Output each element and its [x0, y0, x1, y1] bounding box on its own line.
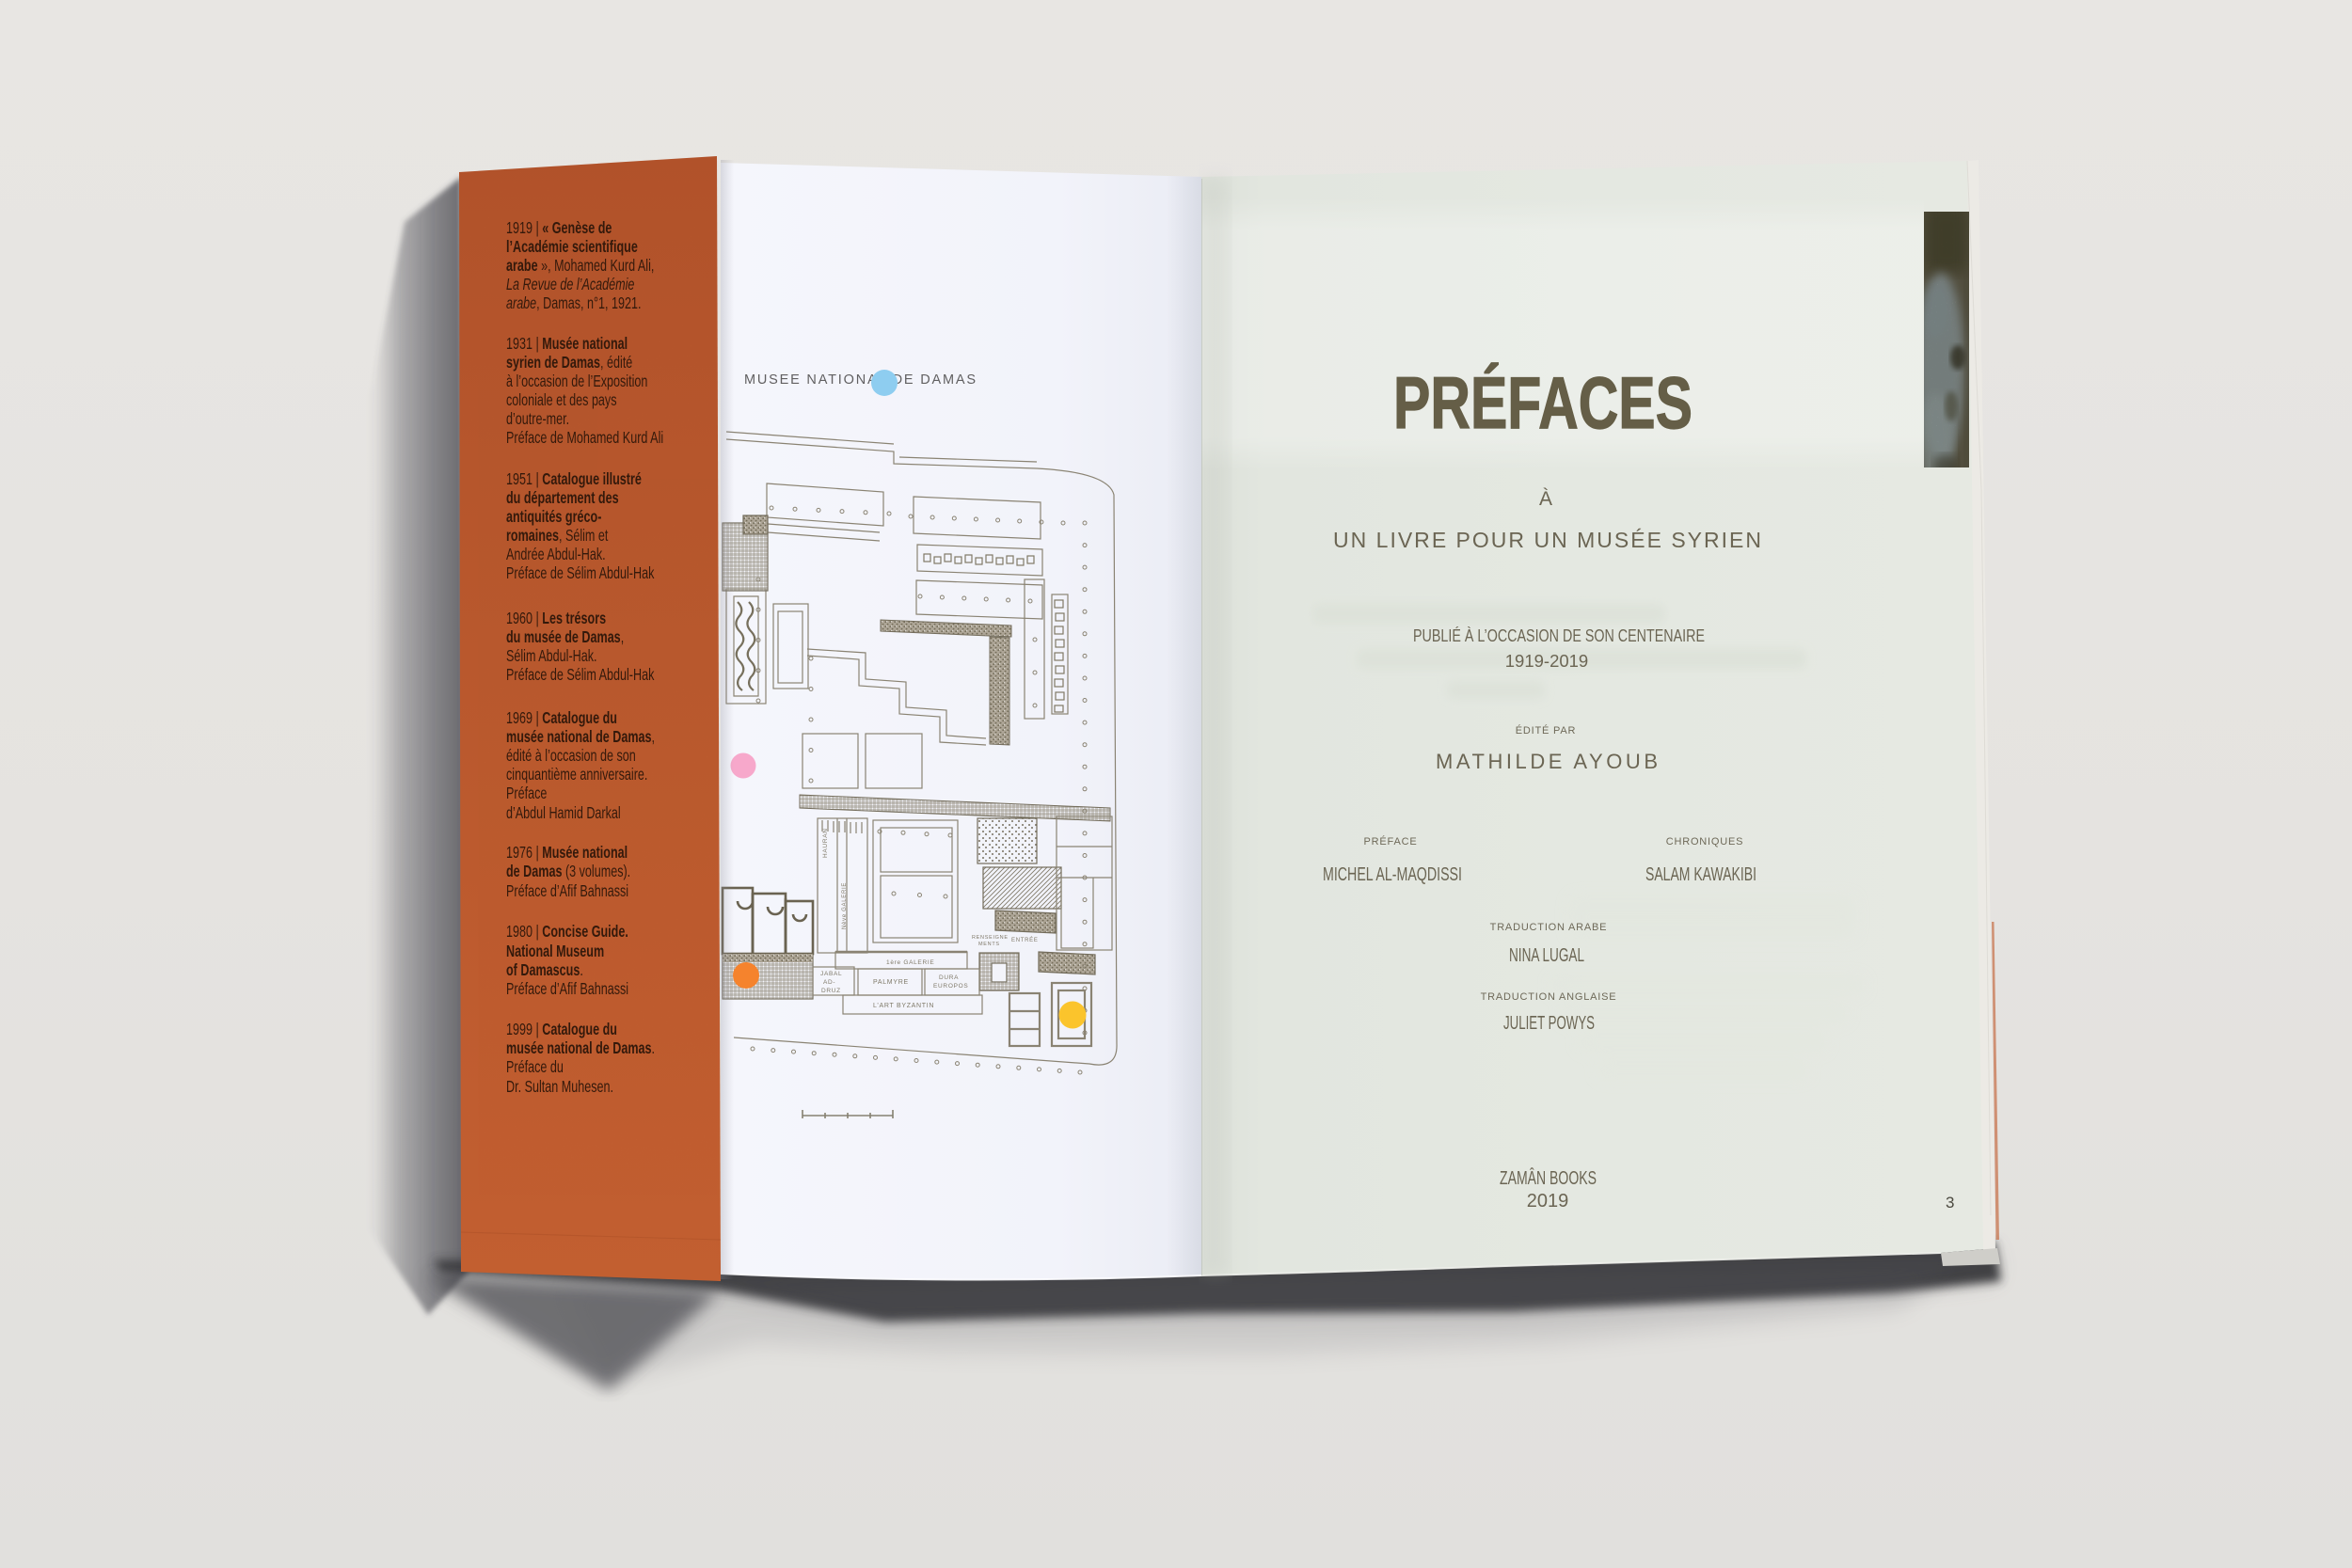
svg-text:2019: 2019: [1527, 1191, 1569, 1212]
svg-text:musée national de Damas.: musée national de Damas.: [506, 1039, 655, 1058]
svg-text:Préface de Sélim Abdul-Hak: Préface de Sélim Abdul-Hak: [506, 564, 655, 583]
svg-text:EUROPOS: EUROPOS: [933, 983, 968, 990]
svg-text:MENTS: MENTS: [978, 942, 1000, 947]
svg-text:musée national de Damas,: musée national de Damas,: [506, 728, 655, 747]
svg-text:1919 | « Genèse de: 1919 | « Genèse de: [506, 219, 612, 238]
svg-text:arabe », Mohamed Kurd Ali,: arabe », Mohamed Kurd Ali,: [506, 257, 654, 276]
svg-text:d’Abdul Hamid Darkal: d’Abdul Hamid Darkal: [506, 804, 621, 823]
svg-text:Nève GALERIE: Nève GALERIE: [842, 882, 848, 929]
svg-text:Dr. Sultan Muhesen.: Dr. Sultan Muhesen.: [506, 1078, 613, 1097]
svg-text:arabe, Damas, n°1, 1921.: arabe, Damas, n°1, 1921.: [506, 294, 642, 313]
svg-text:PRÉFACE: PRÉFACE: [1364, 835, 1418, 847]
svg-text:cinquantième anniversaire.: cinquantième anniversaire.: [506, 766, 647, 784]
svg-text:de Damas (3 volumes).: de Damas (3 volumes).: [506, 863, 630, 881]
svg-text:National Museum: National Museum: [506, 942, 604, 961]
svg-text:RENSEIGNE: RENSEIGNE: [972, 935, 1009, 941]
svg-text:SALAM KAWAKIBI: SALAM KAWAKIBI: [1645, 864, 1756, 885]
svg-text:antiquités gréco-: antiquités gréco-: [506, 508, 601, 527]
svg-text:3: 3: [1946, 1194, 1954, 1212]
svg-text:PRÉFACES: PRÉFACES: [1393, 361, 1692, 444]
svg-text:DRUZ: DRUZ: [821, 988, 841, 994]
svg-text:TRADUCTION ARABE: TRADUCTION ARABE: [1490, 922, 1608, 933]
svg-text:Préface de Mohamed Kurd Ali: Préface de Mohamed Kurd Ali: [506, 429, 663, 448]
svg-text:coloniale et des pays: coloniale et des pays: [506, 391, 617, 410]
svg-text:DURA: DURA: [939, 974, 959, 981]
svg-text:PALMYRE: PALMYRE: [873, 979, 909, 986]
svg-text:JULIET POWYS: JULIET POWYS: [1503, 1013, 1595, 1034]
svg-text:AD-: AD-: [823, 979, 835, 986]
svg-text:ENTRÉE: ENTRÉE: [1011, 937, 1039, 943]
svg-text:of Damascus.: of Damascus.: [506, 961, 583, 980]
svg-text:1951 | Catalogue illustré: 1951 | Catalogue illustré: [506, 470, 642, 489]
svg-text:Andrée Abdul-Hak.: Andrée Abdul-Hak.: [506, 546, 606, 564]
svg-text:À: À: [1539, 488, 1552, 510]
svg-text:édité à l’occasion de son: édité à l’occasion de son: [506, 747, 636, 766]
svg-text:Préface d’Afif Bahnassi: Préface d’Afif Bahnassi: [506, 882, 628, 901]
svg-text:1ère GALERIE: 1ère GALERIE: [886, 959, 934, 966]
svg-text:MUSEE NATIONAL DE DAMAS: MUSEE NATIONAL DE DAMAS: [744, 372, 976, 388]
svg-text:MICHEL AL-MAQDISSI: MICHEL AL-MAQDISSI: [1323, 864, 1462, 885]
svg-text:JABAL: JABAL: [820, 971, 842, 977]
svg-text:La Revue de l’Académie: La Revue de l’Académie: [506, 276, 635, 294]
svg-text:1976 | Musée national: 1976 | Musée national: [506, 844, 628, 863]
svg-text:ZAMÂN BOOKS: ZAMÂN BOOKS: [1500, 1167, 1597, 1189]
svg-text:romaines, Sélim et: romaines, Sélim et: [506, 527, 609, 546]
svg-text:du département des: du département des: [506, 489, 619, 508]
svg-text:1960 | Les trésors: 1960 | Les trésors: [506, 610, 606, 628]
svg-text:1919-2019: 1919-2019: [1505, 651, 1588, 671]
svg-text:à l’occasion de l’Exposition: à l’occasion de l’Exposition: [506, 372, 647, 391]
svg-text:L’ART BYZANTIN: L’ART BYZANTIN: [873, 1003, 934, 1009]
svg-text:1931 | Musée national: 1931 | Musée national: [506, 335, 628, 354]
svg-text:1980 | Concise Guide.: 1980 | Concise Guide.: [506, 923, 628, 942]
svg-text:1999 | Catalogue du: 1999 | Catalogue du: [506, 1021, 617, 1039]
svg-text:du musée de Damas,: du musée de Damas,: [506, 628, 624, 647]
svg-text:Préface de Sélim Abdul-Hak: Préface de Sélim Abdul-Hak: [506, 666, 655, 685]
svg-text:Préface du: Préface du: [506, 1058, 564, 1077]
svg-text:CHRONIQUES: CHRONIQUES: [1666, 836, 1744, 847]
svg-text:l’Académie scientifique: l’Académie scientifique: [506, 238, 638, 257]
svg-text:1969 | Catalogue du: 1969 | Catalogue du: [506, 709, 617, 728]
svg-text:d’outre-mer.: d’outre-mer.: [506, 410, 569, 429]
svg-text:Sélim Abdul-Hak.: Sélim Abdul-Hak.: [506, 647, 597, 666]
svg-text:UN LIVRE POUR UN MUSÉE SYRIEN: UN LIVRE POUR UN MUSÉE SYRIEN: [1333, 528, 1761, 552]
svg-text:Préface d’Afif Bahnassi: Préface d’Afif Bahnassi: [506, 980, 628, 999]
svg-text:Préface: Préface: [506, 784, 547, 803]
svg-text:syrien de Damas, édité: syrien de Damas, édité: [506, 354, 632, 372]
svg-text:ÉDITÉ PAR: ÉDITÉ PAR: [1516, 724, 1576, 736]
svg-text:NINA LUGAL: NINA LUGAL: [1509, 945, 1584, 966]
svg-text:PUBLIÉ À L’OCCASION DE SON CEN: PUBLIÉ À L’OCCASION DE SON CENTENAIRE: [1413, 626, 1705, 645]
svg-text:TRADUCTION ANGLAISE: TRADUCTION ANGLAISE: [1481, 991, 1617, 1003]
svg-text:HAURAN: HAURAN: [822, 828, 829, 858]
